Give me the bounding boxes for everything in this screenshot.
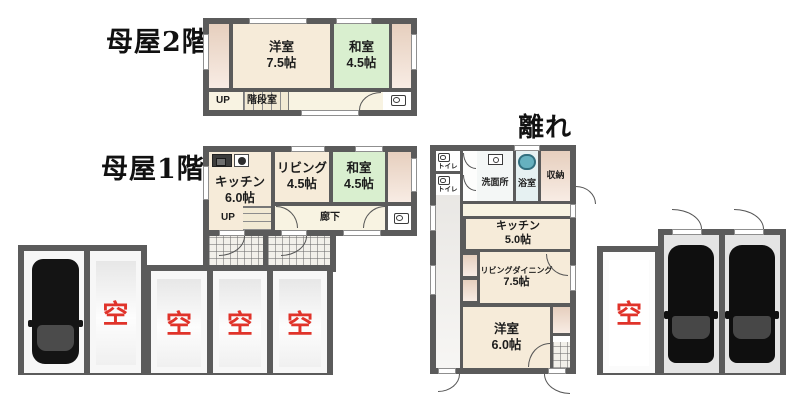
hanare-kitchen-size: 5.0帖 [505, 234, 531, 248]
hanare-kitchen: キッチン 5.0帖 [466, 219, 570, 249]
building-main-1f: キッチン 6.0帖 リビング 4.5帖 和室 4.5帖 廊下 UP [203, 146, 417, 236]
room-2f-yoshitsu-name: 洋室 [269, 40, 294, 56]
room-2f-yoshitsu: 洋室 7.5帖 [233, 24, 330, 88]
closet-1f-right [388, 152, 411, 202]
room-1f-washitsu-size: 4.5帖 [344, 177, 374, 193]
room-1f-kitchen-name: キッチン [215, 175, 265, 191]
window [514, 145, 540, 151]
washbasin-icon [488, 154, 503, 165]
garage-door [672, 229, 702, 235]
window [570, 265, 576, 291]
car-mirror [78, 320, 83, 327]
hanare-closet-left-upper [463, 255, 477, 276]
toilet-icon [438, 176, 450, 185]
hanare-genkan [553, 342, 570, 368]
window [355, 146, 383, 152]
hanare-yoshitsu-size: 6.0帖 [492, 338, 522, 354]
vacant-label: 空 [166, 304, 192, 341]
parking-stall-vacant: 空 [90, 251, 141, 373]
hanare-corridor [463, 204, 570, 216]
car-mirror [713, 311, 718, 319]
hanare-kitchen-name: キッチン [496, 220, 540, 234]
kitchen-sink-icon [212, 154, 232, 167]
room-1f-living-name: リビング [277, 161, 327, 177]
vacant-label: 空 [102, 294, 128, 331]
window [411, 158, 417, 192]
car-top-view [32, 259, 79, 364]
window [291, 146, 325, 152]
hanare-toilet-2-label: トイレ [438, 186, 458, 194]
window [203, 166, 209, 200]
car-mirror [725, 311, 730, 319]
hanare-ld-size: 7.5帖 [503, 276, 529, 290]
car-windshield [37, 325, 74, 351]
garage-door [734, 229, 764, 235]
toilet-icon [394, 213, 409, 224]
parking-right-block-b [658, 229, 786, 375]
car-windshield [733, 316, 771, 340]
door-arc [576, 186, 596, 204]
car-mirror [664, 311, 669, 319]
car-windshield [672, 316, 710, 340]
room-1f-washitsu: 和室 4.5帖 [333, 152, 385, 202]
hanare-title: 離れ [518, 107, 572, 144]
window [343, 230, 381, 236]
window [203, 34, 209, 70]
hanare-washroom-label: 洗面所 [481, 177, 508, 188]
hanare-closet-right [553, 307, 570, 333]
hanare-toilet-1: トイレ [436, 151, 460, 171]
building-hanare: トイレ トイレ 洗面所 浴室 収納 [430, 145, 576, 374]
hanare-closet-left-lower [463, 280, 477, 301]
parking-stall-vacant: 空 [151, 271, 207, 373]
hanare-toilet-1-label: トイレ [438, 163, 458, 171]
stairs-1f [243, 206, 271, 230]
window [249, 18, 307, 24]
window [411, 34, 417, 70]
stairs-1f-up-label: UP [221, 212, 235, 225]
vacant-label: 空 [616, 294, 642, 331]
parking-stall-vacant: 空 [213, 271, 267, 373]
toilet-2f [383, 92, 411, 110]
kitchen-stove-icon [234, 154, 249, 167]
wall [719, 235, 725, 375]
hanare-veranda [436, 195, 460, 368]
door-arc [734, 209, 764, 229]
door-arc [438, 374, 460, 392]
hanare-ld-name: リビングダイニング [481, 266, 553, 276]
door-arc [544, 374, 570, 394]
parking-left-block-b: 空 空 空 [145, 265, 333, 375]
door-arc [672, 209, 702, 229]
toilet-icon [391, 95, 406, 106]
closet-2f-right [392, 24, 411, 88]
car-mirror [774, 311, 779, 319]
room-2f-washitsu-name: 和室 [349, 40, 374, 56]
window [301, 110, 359, 116]
window [430, 265, 436, 295]
room-2f-washitsu: 和室 4.5帖 [334, 24, 389, 88]
vacant-label: 空 [227, 304, 253, 341]
car-mirror [28, 320, 33, 327]
hanare-toilet-2: トイレ [436, 174, 460, 195]
closet-2f-left [209, 24, 229, 88]
parking-right-block-a: 空 [597, 246, 661, 375]
window [336, 18, 372, 24]
car-front-view [729, 245, 775, 363]
wall [463, 216, 466, 249]
stairs-2f-up-label: UP [216, 95, 230, 108]
room-2f-yoshitsu-size: 7.5帖 [267, 56, 297, 72]
corridor-1f-label: 廊下 [320, 212, 340, 225]
hanare-yoshitsu-name: 洋室 [494, 322, 519, 338]
toilet-icon [438, 153, 450, 162]
room-1f-washitsu-name: 和室 [346, 161, 371, 177]
hanare-storage: 収納 [541, 151, 570, 201]
parking-stall-vacant: 空 [273, 271, 327, 373]
parking-stall-vacant: 空 [603, 252, 655, 373]
parking-left-block-a: 空 [18, 245, 147, 375]
vacant-label: 空 [287, 304, 313, 341]
room-1f-living-size: 4.5帖 [287, 177, 317, 193]
window [430, 205, 436, 231]
room-1f-living: リビング 4.5帖 [275, 152, 329, 202]
toilet-1f [388, 206, 411, 230]
room-2f-washitsu-size: 4.5帖 [347, 56, 377, 72]
main-house-1f-title: 母屋1階 [101, 147, 205, 186]
floor-plan: 母屋2階 母屋1階 離れ 洋室 7.5帖 和室 4.5帖 UP 階段室 キッチン… [0, 0, 800, 406]
hanare-storage-label: 収納 [546, 170, 564, 181]
stairs-2f-room-label: 階段室 [247, 95, 277, 108]
car-front-view [668, 245, 714, 363]
building-main-2f: 洋室 7.5帖 和室 4.5帖 UP 階段室 [203, 18, 417, 116]
main-house-2f-title: 母屋2階 [106, 20, 210, 59]
bathtub-icon [518, 154, 536, 170]
exterior-door [570, 204, 576, 218]
hanare-bath-label: 浴室 [518, 178, 536, 189]
room-1f-kitchen-size: 6.0帖 [225, 191, 255, 207]
